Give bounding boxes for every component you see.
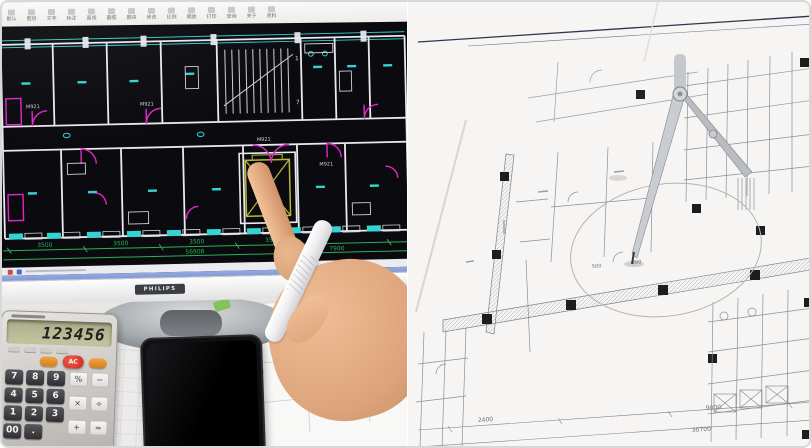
photo-collage: 1 7 [0,0,811,448]
door-label: M921 [26,104,40,110]
calc-key: + [67,419,86,435]
toolbar-item-label: 比例 [167,14,177,20]
toolbar-item-label: 文字 [47,16,57,22]
memory-key [24,347,36,352]
toolbar-item-label: 资料 [267,13,277,19]
toolbar-item: 标注 [66,8,77,21]
toolbar-item: 查询 [226,6,237,19]
dim-2400: 2400 [478,416,494,424]
monitor-brand-logo: PHILIPS [135,284,185,295]
toolbar-icon [8,9,15,15]
toolbar-icon [208,7,215,13]
stair-mark-1: 1 [295,55,299,62]
calc-key: 7 [5,369,24,385]
door-label: M921 [319,161,333,167]
dim-3500: 3500 [113,240,129,247]
toolbar-icon [248,6,255,12]
monitor-stand-slot [160,310,222,336]
toolbar-icon [128,7,135,13]
toolbar-item-label: 标注 [67,16,77,22]
calc-key: 3 [46,407,65,423]
calculator-memory-keys [8,346,109,355]
stair-mark-7: 7 [296,99,300,106]
toolbar-item-label: 直线 [87,15,97,21]
monitor-screen: 1 7 [2,6,407,287]
calc-key: 6 [46,389,65,405]
toolbar-item: 文字 [46,8,57,21]
smartphone [140,334,266,448]
toolbar-icon [228,6,235,12]
memory-key [56,348,68,353]
command-text-blur [26,269,86,272]
toolbar-item-label: 修改 [147,15,157,21]
dim-30700: 30700 [692,426,712,434]
calc-key: % [69,371,88,387]
left-photo-cad-monitor: 1 7 [2,2,407,448]
toolbar-icon [48,8,55,14]
calc-key: = [89,420,108,436]
toolbar-icon [28,9,35,15]
calculator: 123456 AC 78945612300. %−×÷+= [2,310,118,448]
dim-500: 500 [592,263,602,270]
toolbar-item-label: 默认 [7,16,17,22]
toolbar-item: 缩放 [186,7,197,20]
toolbar-item-label: 图块 [127,15,137,21]
toolbar-icon [188,7,195,13]
calc-key: 9 [47,371,66,387]
toolbar-item: 图层 [26,9,37,22]
toolbar-item: 打印 [206,6,217,19]
calc-key: 4 [4,387,23,403]
toolbar-icon [68,8,75,14]
calc-key: . [24,424,43,440]
dim-3500: 3500 [37,242,53,249]
orange-key [89,358,107,369]
calc-key: 8 [26,370,45,386]
dim-3500: 3500 [189,238,205,245]
calculator-function-row: AC [40,354,111,369]
memory-key [40,347,52,352]
blueprint-drawing: 2400 9000 30700 500 200 [408,2,811,448]
door-label: M921 [257,137,271,143]
toolbar-item-label: 查询 [227,14,237,20]
toolbar-item: 资料 [266,6,277,19]
command-icon-blue [17,269,22,274]
command-icon-red [8,269,13,274]
calc-key: ÷ [90,396,109,412]
dim-extra: 7900 [329,245,345,252]
toolbar-item: 比例 [166,7,177,20]
toolbar-icon [108,8,115,14]
calculator-display: 123456 [6,319,112,347]
door-label: M921 [140,101,154,107]
toolbar-item: 默认 [6,9,17,22]
dim-9000: 9000 [706,404,722,412]
toolbar-item-label: 缩放 [187,14,197,20]
toolbar-icon [88,8,95,14]
toolbar-item-label: 关于 [247,13,257,19]
calc-key: 2 [25,406,44,422]
toolbar-icon [168,7,175,13]
right-photo-blueprints: 2400 9000 30700 500 200 [407,2,811,448]
toolbar-item: 关于 [246,6,257,19]
toolbar-item: 圆弧 [106,8,117,21]
calculator-brand-blur [11,314,45,318]
calculator-operator-keys: %−×÷+= [67,371,109,441]
toolbar-item: 修改 [146,7,157,20]
calc-key: 00 [3,423,22,439]
dim-total: 56908 [185,248,204,255]
toolbar-item: 图块 [126,7,137,20]
calc-key: 5 [25,388,44,404]
toolbar-item-label: 图层 [27,16,37,22]
cad-floorplan: 1 7 [2,6,407,268]
ac-key: AC [63,355,84,369]
orange-key [40,356,58,367]
memory-key [8,346,20,351]
calculator-digit-keys: 78945612300. [3,369,65,440]
calc-key: − [90,372,109,388]
toolbar-item-label: 圆弧 [107,15,117,21]
toolbar-icon [148,7,155,13]
toolbar-item-label: 打印 [207,14,217,20]
calc-key: 1 [4,405,23,421]
calculator-display-value: 123456 [42,323,106,344]
smartphone-screen [146,340,260,448]
calc-key: × [68,395,87,411]
toolbar-icon [268,6,275,12]
toolbar-item: 直线 [86,8,97,21]
